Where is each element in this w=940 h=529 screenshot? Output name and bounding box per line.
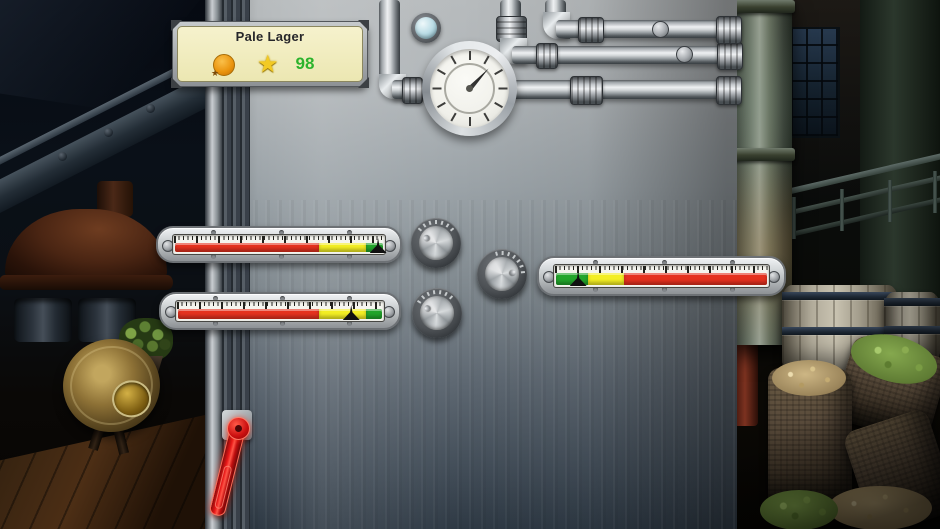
tick-mark bbox=[519, 265, 523, 268]
tick-mark bbox=[446, 223, 450, 227]
recipe-title: Pale Lager bbox=[173, 29, 367, 44]
knob-lower[interactable] bbox=[412, 288, 462, 338]
tick-mark bbox=[495, 252, 498, 256]
pipe-end-flange bbox=[716, 76, 742, 105]
tick-mark bbox=[418, 227, 422, 231]
staircase-railing-right bbox=[778, 175, 940, 270]
pipe-end-flange bbox=[717, 42, 743, 70]
clock-gauge[interactable] bbox=[422, 41, 517, 136]
tick-mark bbox=[423, 223, 427, 227]
copper-kettle bbox=[5, 195, 167, 297]
barrel-band bbox=[884, 326, 940, 334]
pipe-coupling bbox=[578, 17, 604, 43]
tick-mark bbox=[516, 259, 520, 263]
tick-mark bbox=[440, 221, 443, 225]
stair-bolt-icon bbox=[146, 104, 155, 113]
lever-pin bbox=[235, 425, 242, 432]
tick-mark bbox=[469, 51, 471, 60]
tick-mark bbox=[417, 300, 421, 304]
lever-pivot[interactable] bbox=[227, 417, 250, 440]
tick-mark bbox=[435, 220, 437, 224]
tick-mark bbox=[512, 255, 516, 259]
stair-bolt-icon bbox=[58, 152, 67, 161]
tick-mark bbox=[521, 271, 525, 273]
tick-mark bbox=[426, 292, 429, 296]
tick-mark bbox=[450, 56, 456, 65]
zone-green bbox=[366, 309, 382, 319]
tick-mark bbox=[498, 88, 507, 90]
gauge-bottom-left[interactable] bbox=[159, 292, 401, 330]
gauge-zones bbox=[556, 273, 767, 285]
tick-mark bbox=[494, 69, 503, 75]
porthole bbox=[411, 13, 441, 43]
metal-kegs bbox=[14, 298, 136, 342]
knob-middle[interactable] bbox=[477, 249, 527, 299]
tick-mark bbox=[449, 295, 453, 299]
score-value: 98 bbox=[283, 54, 327, 74]
tick-mark bbox=[502, 251, 504, 255]
kettle-rim bbox=[0, 275, 173, 290]
gauge-ticks bbox=[174, 236, 384, 243]
railing-post bbox=[792, 197, 796, 239]
zone-yellow bbox=[319, 243, 367, 252]
tick-mark bbox=[433, 290, 436, 294]
pipe-bolt bbox=[652, 21, 669, 38]
porthole-glass bbox=[415, 17, 437, 39]
star-icon: ★ bbox=[257, 50, 279, 79]
tick-mark bbox=[428, 221, 431, 225]
tick-mark bbox=[432, 88, 441, 90]
medal-star-icon: ★ bbox=[211, 68, 219, 79]
factory-window bbox=[789, 27, 840, 138]
gauge-top-left[interactable] bbox=[156, 226, 402, 263]
pipe-coupling bbox=[570, 76, 603, 105]
pipe-end-flange bbox=[716, 16, 742, 44]
zone-yellow bbox=[319, 309, 366, 319]
zone-yellow bbox=[588, 273, 624, 285]
gauge-strip bbox=[175, 300, 385, 322]
tick-mark bbox=[439, 290, 442, 294]
railing-post bbox=[933, 171, 937, 213]
gauge-zones bbox=[175, 243, 383, 252]
tick-mark bbox=[494, 102, 503, 108]
railing-bar bbox=[777, 175, 940, 218]
kettle-dome bbox=[5, 209, 167, 281]
recipe-panel: Pale Lager ★ ★ 98 bbox=[172, 21, 368, 87]
zone-red bbox=[624, 273, 767, 285]
gauge-strip bbox=[172, 234, 386, 255]
tick-mark bbox=[507, 252, 510, 256]
medal-icon: ★ bbox=[213, 54, 235, 76]
pipe-coupling bbox=[536, 43, 558, 69]
railing-post bbox=[888, 180, 892, 222]
clock-hub bbox=[466, 85, 473, 92]
keg bbox=[14, 298, 72, 342]
tick-mark bbox=[483, 56, 489, 65]
gauge-ticks bbox=[555, 266, 768, 273]
stair-bolt-icon bbox=[104, 128, 113, 137]
knob-face bbox=[419, 226, 453, 260]
game-stage: Pale Lager ★ ★ 98 bbox=[0, 0, 940, 529]
tick-mark bbox=[437, 102, 446, 108]
vignette bbox=[732, 380, 940, 529]
tick-mark bbox=[444, 292, 448, 296]
gauge-right[interactable] bbox=[537, 256, 786, 296]
tick-mark bbox=[437, 69, 446, 75]
knob-face bbox=[420, 296, 454, 330]
pipe-bolt bbox=[676, 46, 693, 63]
column-flange bbox=[729, 148, 795, 161]
railing-bar bbox=[777, 197, 940, 240]
zone-red bbox=[178, 309, 319, 319]
zone-red bbox=[175, 243, 319, 252]
barrel-band bbox=[782, 292, 898, 300]
knob-upper[interactable] bbox=[411, 218, 461, 268]
gauge-strip bbox=[553, 264, 770, 288]
barrel-band bbox=[884, 298, 940, 306]
railing-post bbox=[840, 189, 844, 231]
gauge-ticks bbox=[177, 302, 383, 309]
tick-mark bbox=[450, 113, 456, 122]
tick-mark bbox=[483, 113, 489, 122]
pipe-coupling bbox=[402, 77, 423, 104]
tick-mark bbox=[450, 227, 454, 231]
tick-mark bbox=[469, 117, 471, 126]
tick-mark bbox=[421, 295, 425, 299]
column-flange bbox=[729, 0, 795, 13]
